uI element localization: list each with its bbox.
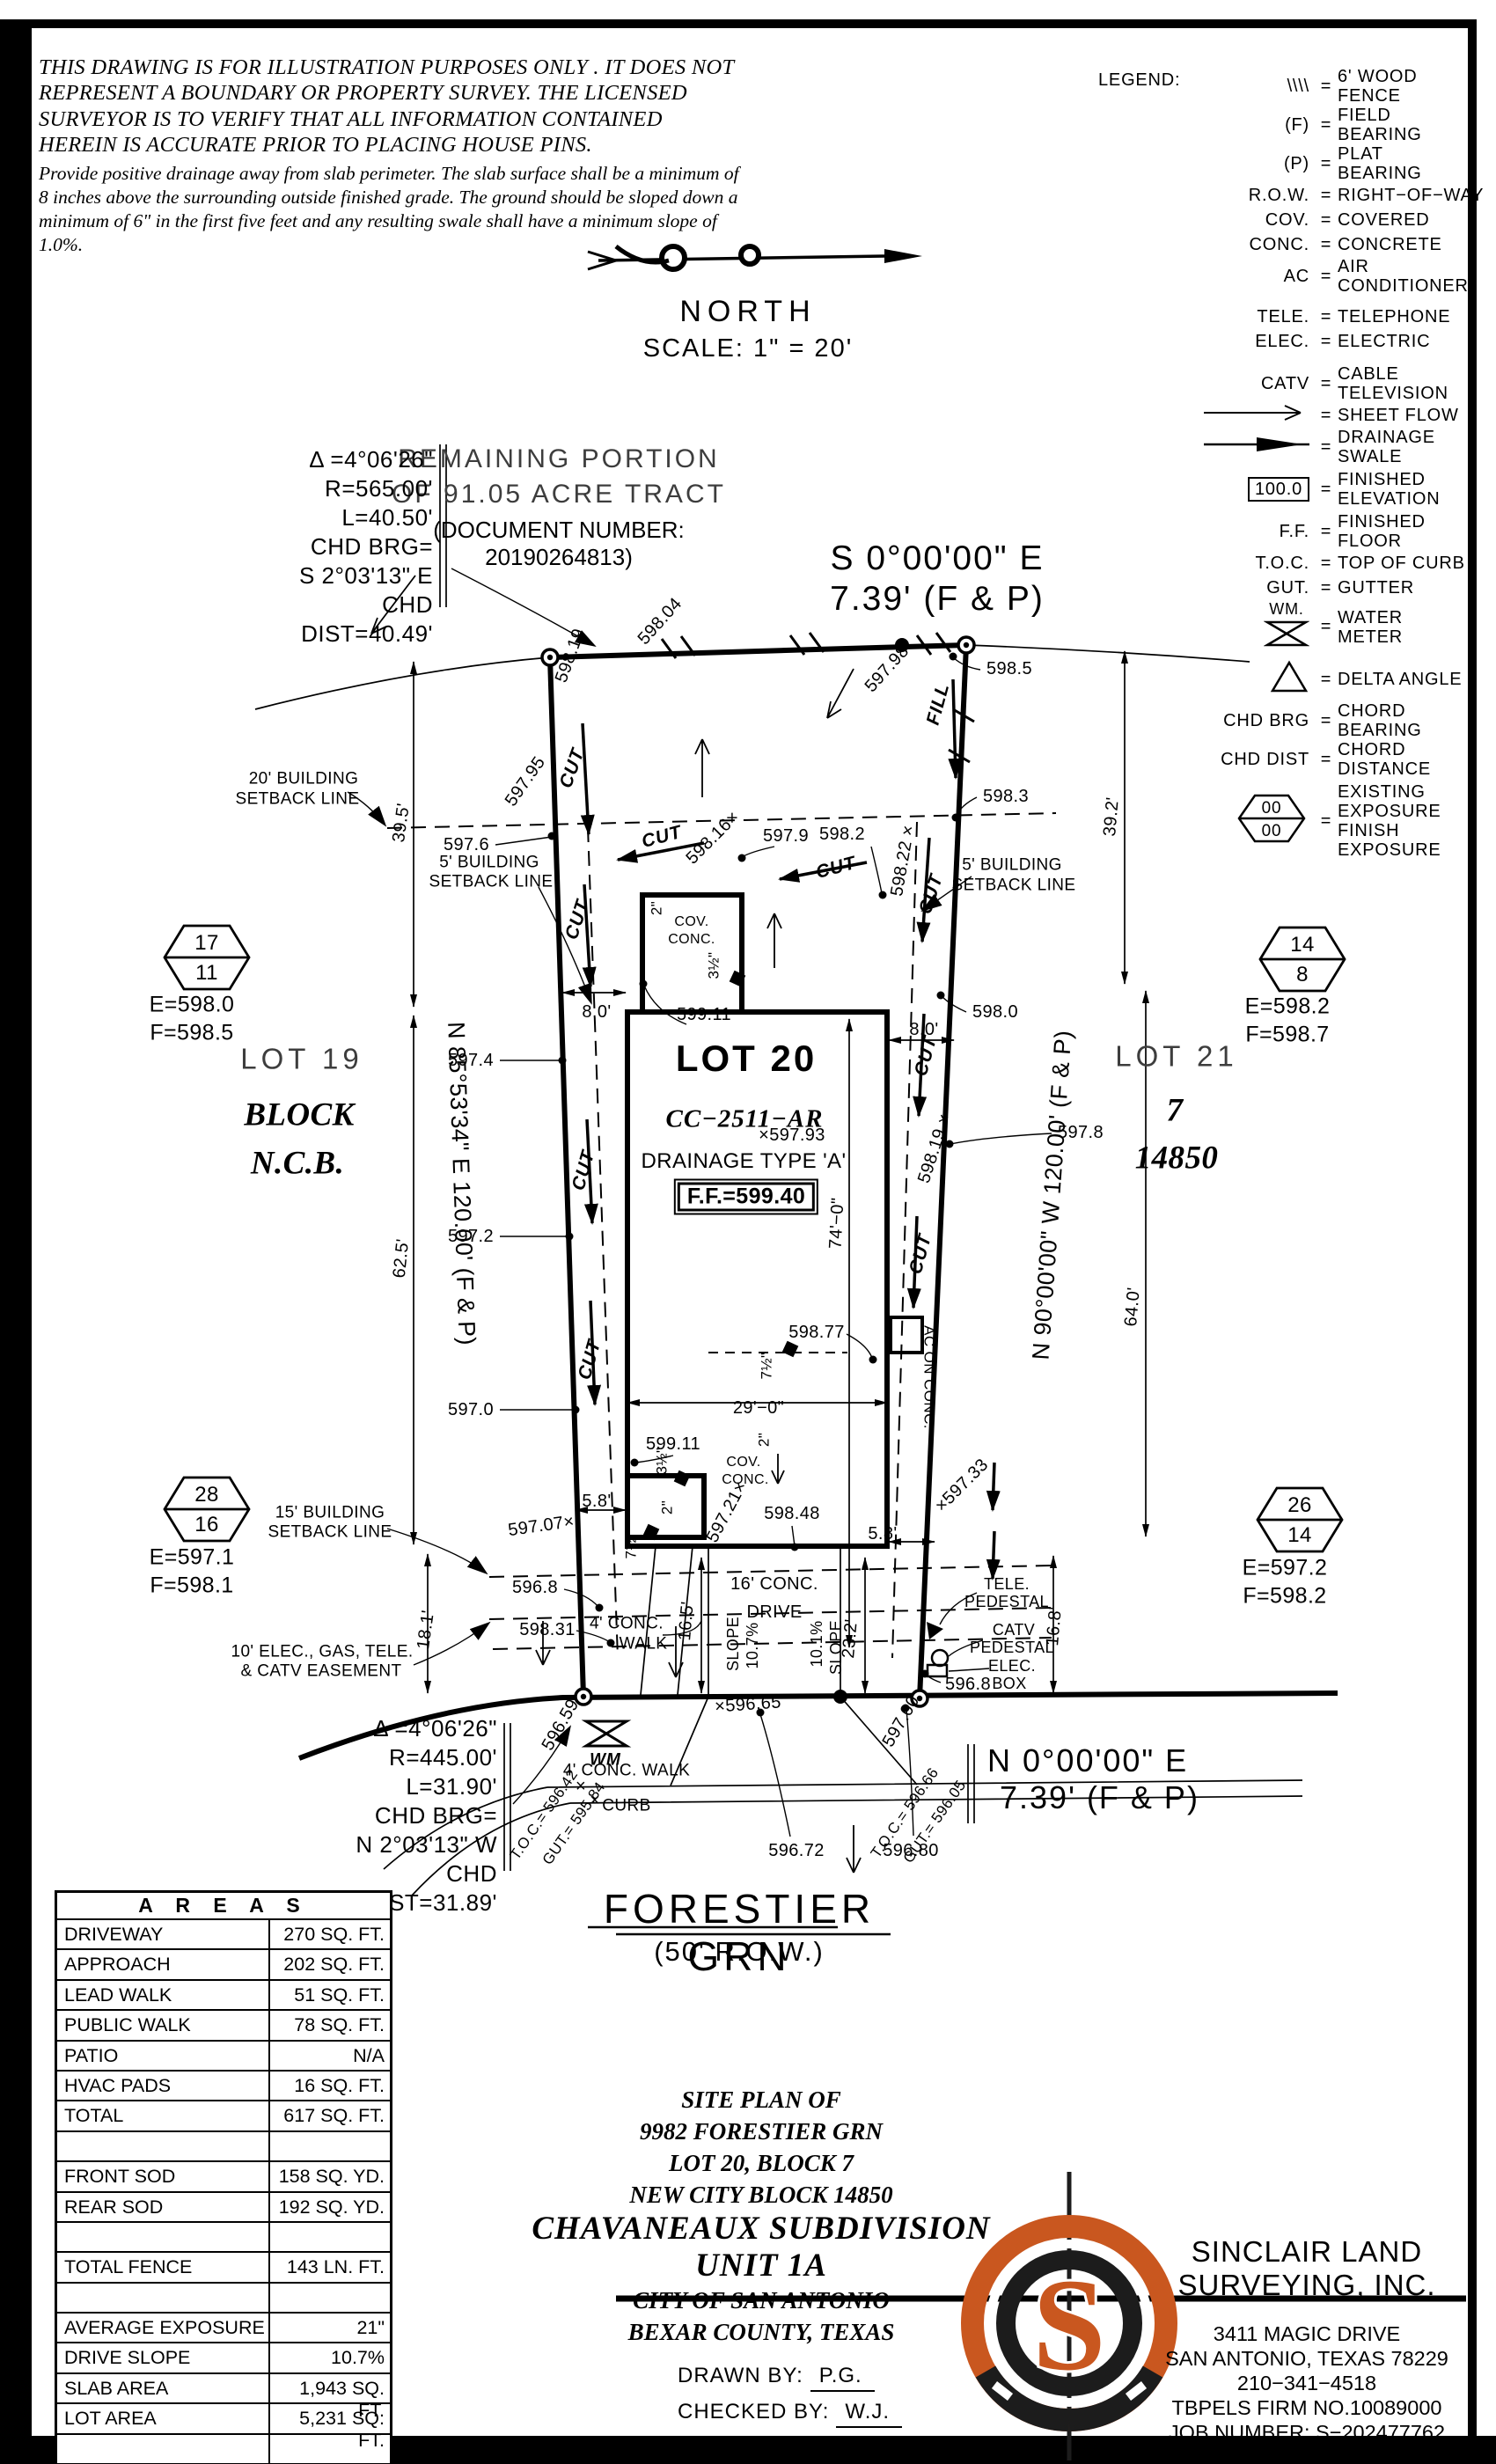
plat-label: 2" [660, 1500, 675, 1514]
cut-fill-label: CUT [906, 1232, 935, 1276]
plat-label: N 90°00'00" W 120.00' (F & P) [1029, 1030, 1075, 1360]
plat-label: PEDESTAL [970, 1639, 1054, 1655]
plat-label: F=598.7 [1245, 1024, 1329, 1046]
plat-label: LOT 20 [676, 1040, 817, 1077]
plat-label: 3½" [707, 952, 722, 979]
plat-label: 16 [194, 1514, 219, 1536]
cut-fill-label: CUT [640, 823, 684, 851]
plat-label: PEDESTAL [964, 1594, 1049, 1610]
plat-label: 16.5' [676, 1601, 697, 1641]
boxed-elevation: 599.11 [677, 1006, 731, 1023]
plat-label: COV. [726, 1456, 760, 1470]
plat-label: 597.98 [862, 642, 912, 696]
boxed-elevation: 598.77 [788, 1324, 845, 1341]
plat-label: CONC. [668, 933, 715, 947]
plat-label: 16' CONC. [730, 1575, 818, 1593]
boxed-elevation: 597.9 [763, 827, 809, 845]
plat-label: SLOPE [725, 1617, 741, 1671]
boxed-elevation: 598.48 [764, 1505, 820, 1522]
plat-label: 29'−0" [733, 1399, 784, 1417]
plat-label: 20' BUILDING [249, 771, 359, 788]
plat-label: × [590, 1792, 600, 1809]
plat-label: 64.0' [1122, 1287, 1143, 1327]
plat-label: 10' ELEC., GAS, TELE. [231, 1644, 413, 1661]
plat-label: AC ON CONC. [922, 1325, 937, 1429]
plat-label: DRIVE [746, 1603, 802, 1621]
plat-label: & CATV EASEMENT [240, 1663, 401, 1680]
boxed-elevation: 596.8 [512, 1579, 558, 1596]
plat-label: ELEC. [988, 1658, 1036, 1674]
cut-fill-label: FILL [924, 681, 953, 727]
cut-fill-label: CUT [912, 1034, 940, 1078]
boxed-elevation: 598.3 [983, 788, 1029, 805]
plat-label: 4' CONC. WALK [563, 1763, 690, 1779]
plat-label: 597.95 [502, 753, 549, 810]
cut-fill-label: CUT [562, 898, 592, 942]
plat-label: × [576, 1778, 586, 1795]
plat-label: 74'−0" [826, 1197, 847, 1249]
plat-label: 14 [1290, 935, 1315, 956]
plat-label: LOT 21 [1115, 1042, 1237, 1071]
plat-label: 597.00 [879, 1692, 922, 1749]
plat-label: E=598.0 [150, 994, 235, 1016]
plat-label: LOT 19 [240, 1045, 363, 1074]
plat-label: 7 [1167, 1095, 1184, 1127]
plat-label: 598.22 × [888, 824, 918, 898]
cut-fill-label: CUT [916, 872, 946, 916]
plat-label: 10.1% [809, 1620, 825, 1667]
boxed-elevation: 597.0 [448, 1401, 494, 1419]
plat-label: 62.5' [391, 1238, 413, 1280]
cut-fill-label: WM [590, 1752, 621, 1769]
plat-label: F=598.5 [150, 1023, 233, 1045]
plat-label: 39.5' [390, 802, 413, 843]
plat-label: 598.19 [553, 627, 589, 686]
plat-label: BOX [992, 1676, 1026, 1691]
plat-label: 39.2' [1101, 796, 1122, 837]
boxed-elevation: 597.6 [444, 836, 489, 854]
cut-fill-label: CUT [576, 1338, 605, 1382]
plat-label: 4' CONC. [590, 1616, 664, 1632]
plat-label: 598.19 × [915, 1111, 954, 1185]
plat-label: 2" [757, 1433, 772, 1447]
plat-label: WALK [620, 1636, 668, 1653]
cut-fill-label: CUT [556, 746, 588, 791]
plat-label: 10.7% [744, 1622, 760, 1668]
boxed-elevation: 596.72 [768, 1842, 825, 1859]
plat-label: 5.8' [868, 1525, 897, 1543]
plat-label: 14 [1287, 1525, 1312, 1546]
plat-label: TELE. [984, 1576, 1030, 1592]
plat-label: 28 [194, 1485, 219, 1506]
plat-label: 26 [1287, 1495, 1312, 1516]
plat-label: 598.16× [683, 808, 743, 868]
plat-label: SLOPE [828, 1620, 844, 1675]
plat-label: 8 [1296, 964, 1309, 986]
plat-label: 5' BUILDING [962, 857, 1062, 874]
plat-label: E=598.2 [1245, 996, 1331, 1018]
plat-label: 597.21× [703, 1478, 750, 1545]
plat-label: 14850 [1135, 1142, 1219, 1175]
plat-label: E=597.2 [1243, 1558, 1328, 1580]
plat-label: CATV [993, 1622, 1035, 1638]
annotation-layer: 598.5598.3597.6597.9598.2598.0597.4597.8… [0, 0, 1496, 2464]
plat-label: 7½" [624, 1532, 639, 1559]
plat-label: 5.8' [582, 1492, 611, 1510]
plat-label: 596.59 [539, 1696, 582, 1753]
plat-label: F=598.2 [1243, 1586, 1326, 1608]
plat-label: SETBACK LINE [268, 1524, 392, 1541]
boxed-elevation: 596.8 [945, 1676, 991, 1693]
plat-label: 15' BUILDING [275, 1505, 385, 1522]
boxed-elevation: 598.0 [972, 1003, 1018, 1021]
plat-label: N.C.B. [251, 1148, 344, 1180]
plat-label: COV. [674, 915, 708, 929]
plat-label: 17 [194, 933, 219, 954]
plat-label: 18.1' [414, 1609, 437, 1650]
boxed-elevation: 598.2 [819, 825, 865, 843]
plat-label: 11 [195, 963, 218, 984]
cut-fill-label: CUT [814, 854, 858, 882]
plat-label: CURB [602, 1798, 650, 1815]
plat-label: CONC. [722, 1473, 769, 1487]
plat-label: SETBACK LINE [429, 874, 553, 891]
plat-label: 597.07× [507, 1513, 576, 1539]
plat-label: SETBACK LINE [235, 791, 359, 808]
plat-label: 598.04 [634, 595, 685, 649]
plat-label: 7½" [759, 1353, 774, 1380]
site-plan-page: S THIS DRAWING IS FOR ILLUSTRATION PURPO… [0, 0, 1496, 2464]
plat-label: DRAINAGE TYPE 'A' [642, 1151, 847, 1172]
plat-label: ×596.65 [715, 1693, 782, 1715]
boxed-elevation: 598.31 [519, 1621, 576, 1639]
plat-label: 5' BUILDING [439, 854, 539, 871]
plat-label: SETBACK LINE [951, 877, 1075, 894]
plat-label: F=598.1 [150, 1575, 233, 1597]
plat-label: 3½" [655, 1448, 670, 1475]
plat-label: ×597.33 [932, 1456, 992, 1515]
plat-label: 2" [649, 901, 664, 915]
plat-label: CC−2511−AR [666, 1107, 824, 1133]
cut-fill-label: CUT [569, 1148, 598, 1192]
plat-label: 8.0' [582, 1003, 611, 1021]
boxed-elevation: 598.5 [986, 660, 1032, 678]
plat-label: BLOCK [244, 1099, 354, 1132]
plat-label: F.F.=599.40 [678, 1183, 815, 1212]
plat-label: E=597.1 [150, 1547, 235, 1569]
